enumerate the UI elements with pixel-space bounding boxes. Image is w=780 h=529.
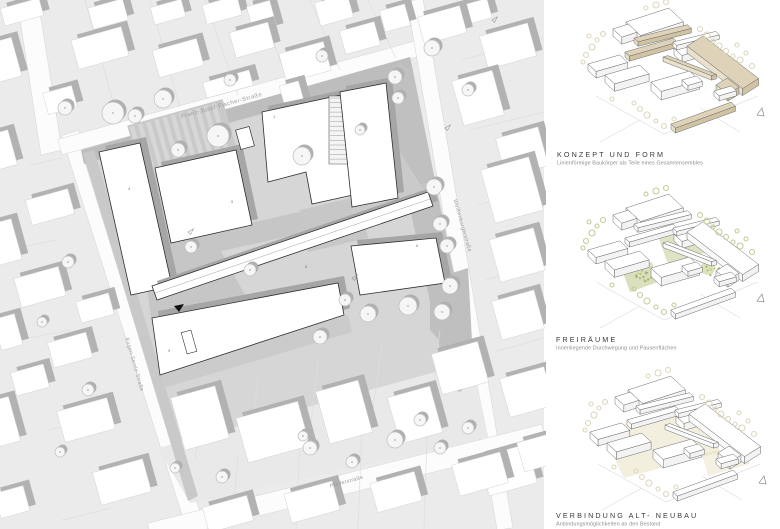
svg-text:Innenliegende Durchwegung und: Innenliegende Durchwegung und Pausenfläc…	[556, 346, 677, 352]
svg-text:KONZEPT UND FORM: KONZEPT UND FORM	[557, 150, 665, 159]
svg-text:FREIRÄUME: FREIRÄUME	[556, 335, 617, 344]
svg-text:Anbindungsmöglichkeiten an den: Anbindungsmöglichkeiten an den Bestand	[556, 522, 661, 528]
svg-text:VERBINDUNG ALT- NEUBAU: VERBINDUNG ALT- NEUBAU	[556, 511, 698, 520]
svg-text:Linienförmige Baukörper als Te: Linienförmige Baukörper als Teile eines …	[557, 161, 703, 167]
